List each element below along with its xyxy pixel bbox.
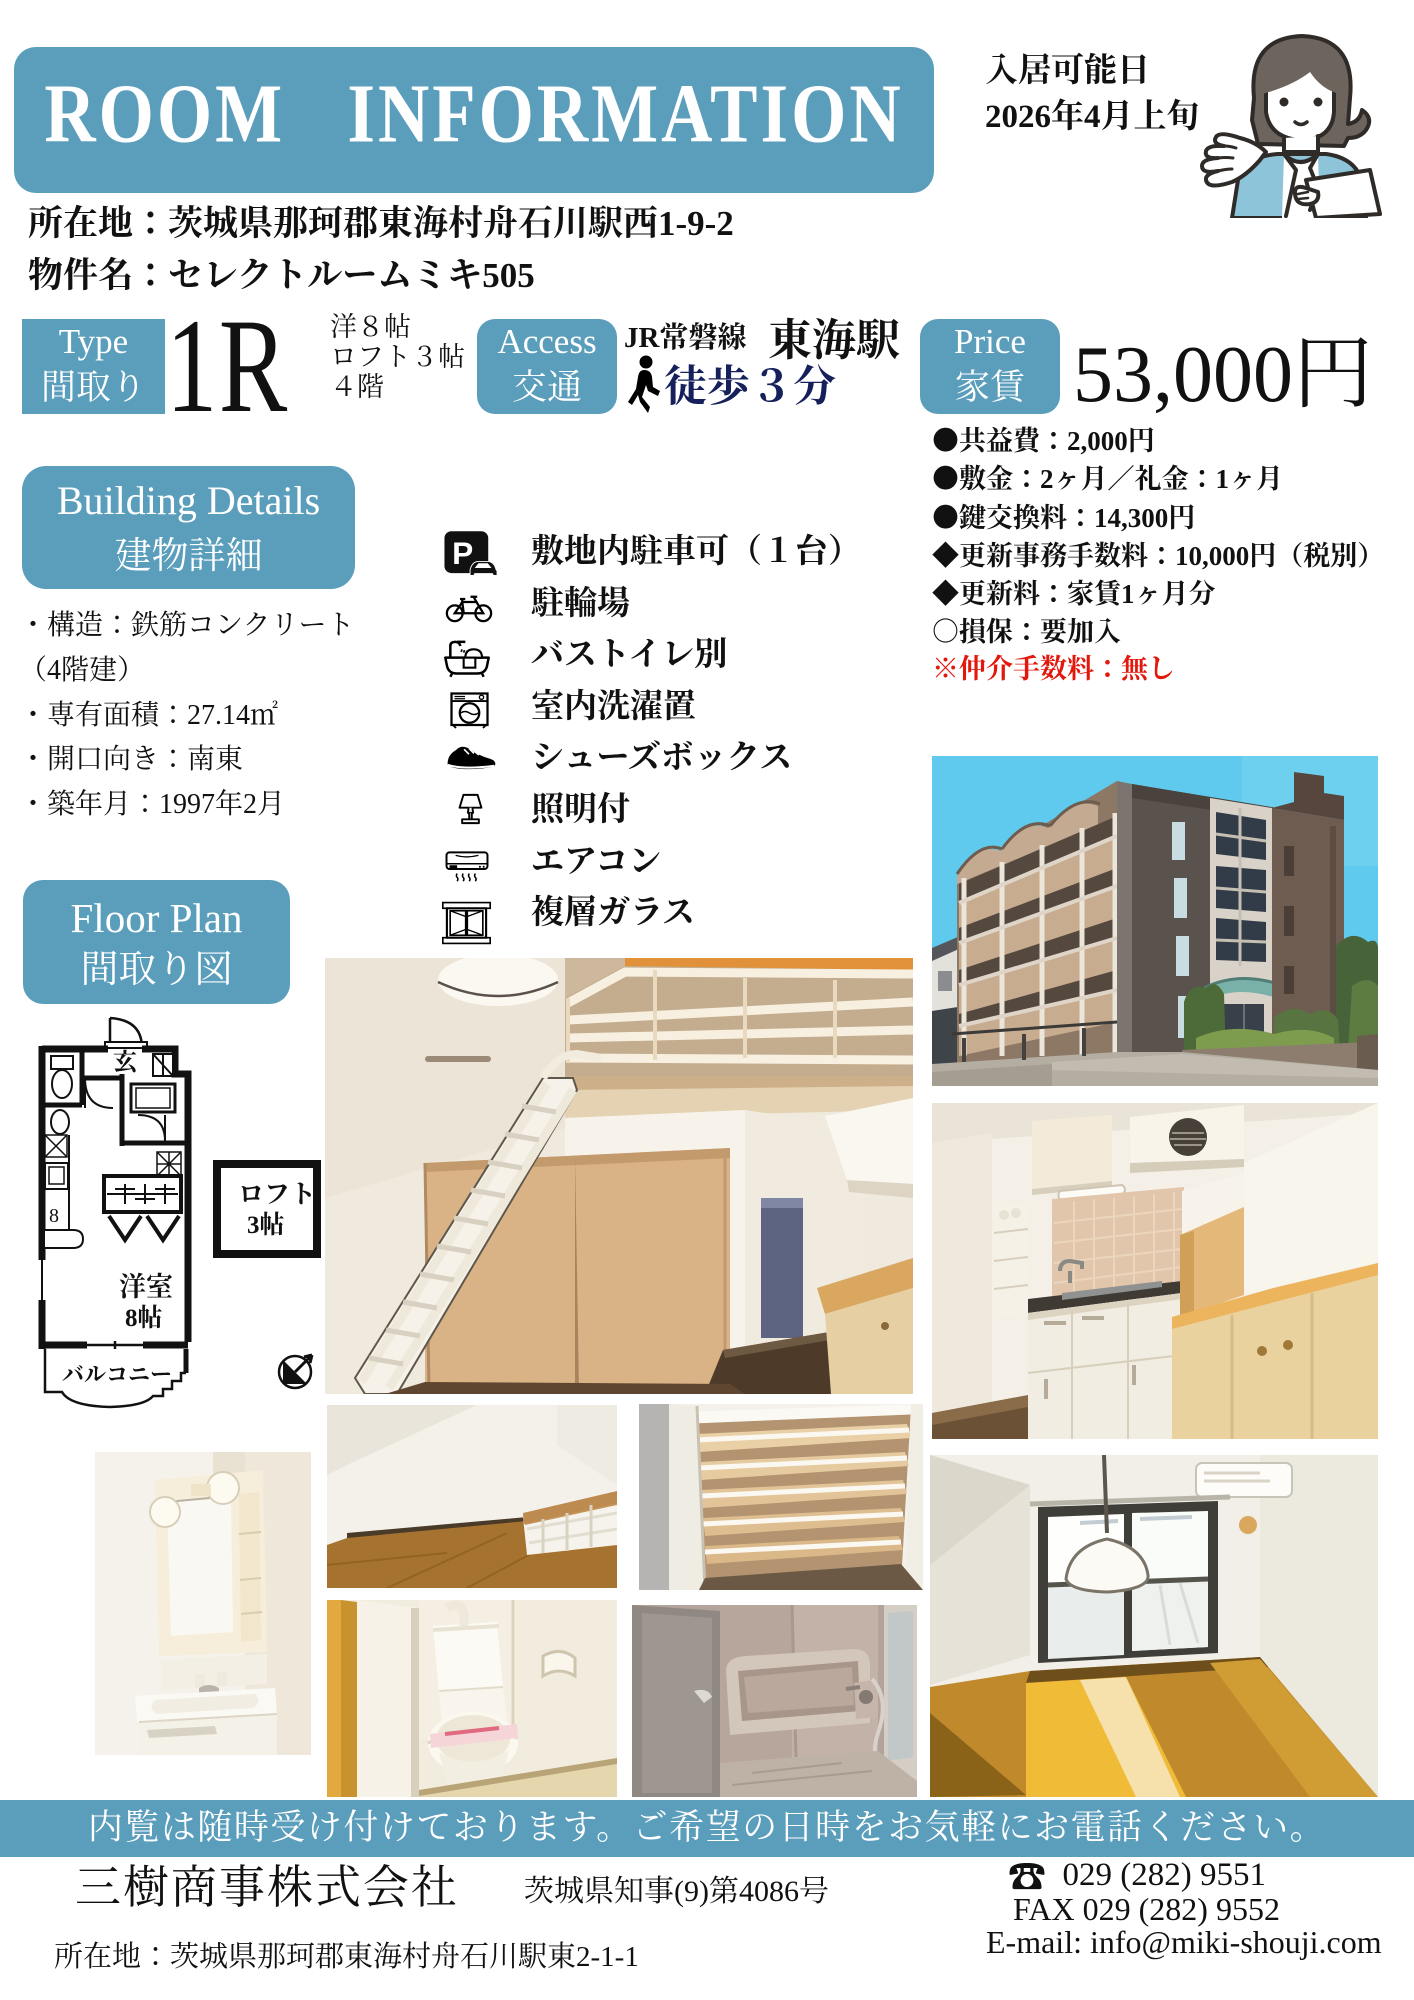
svg-text:ロフト: ロフト <box>238 1180 316 1209</box>
svg-text:8: 8 <box>49 1205 59 1227</box>
svg-text:洋室: 洋室 <box>119 1272 173 1302</box>
svg-text:バルコニー: バルコニー <box>62 1362 172 1387</box>
svg-text:8帖: 8帖 <box>125 1304 163 1332</box>
svg-text:P: P <box>452 535 473 571</box>
svg-text:3帖: 3帖 <box>247 1211 285 1239</box>
svg-text:玄: 玄 <box>113 1049 139 1076</box>
